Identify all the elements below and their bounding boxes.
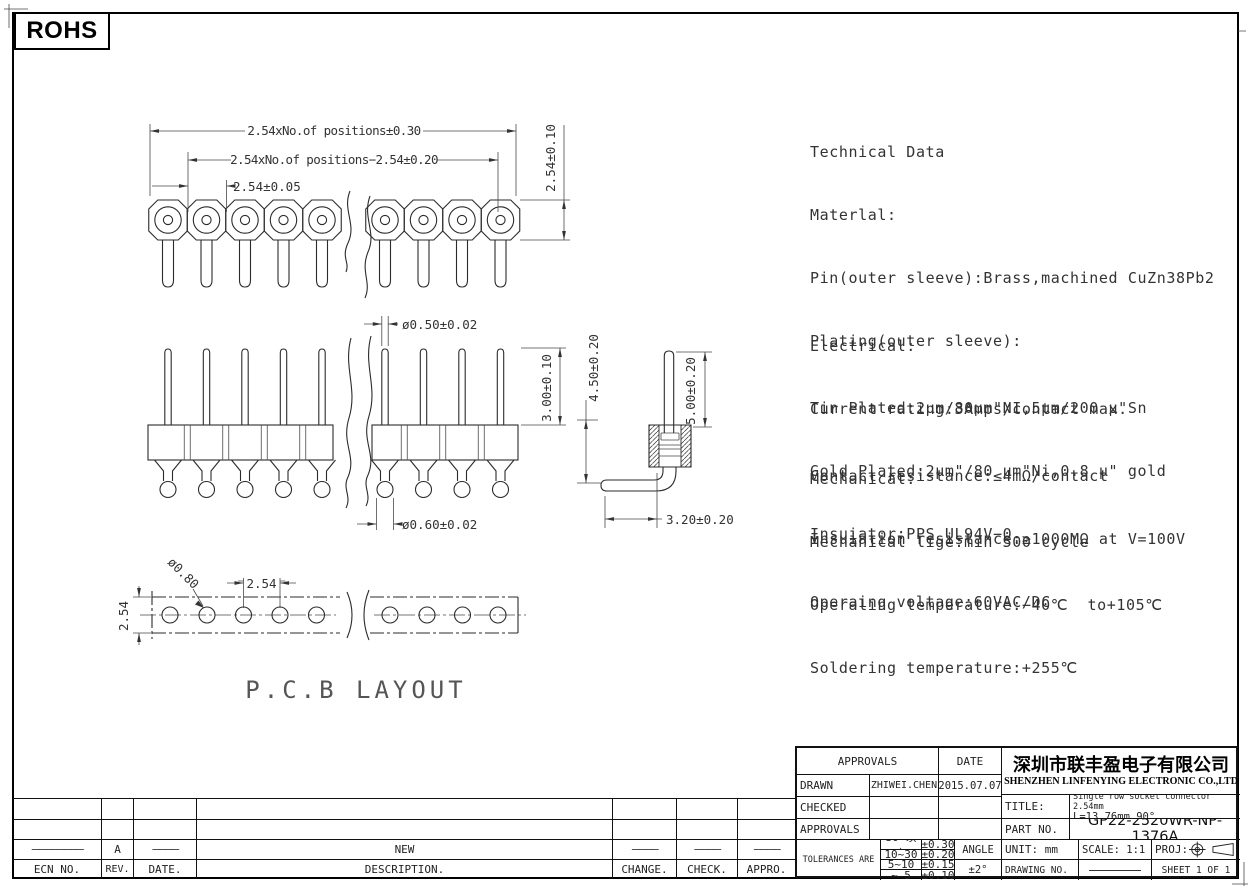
tol-range-4: ~ 5 <box>881 870 922 880</box>
entry-description: NEW <box>197 839 613 859</box>
note-line: Electrical: <box>810 336 1186 357</box>
header-ecn-no: ECN NO. <box>13 859 102 879</box>
dim-pin-length: 3.00±0.10 <box>539 354 554 422</box>
note-line: Current rating:3Amps/contact max. <box>810 399 1186 420</box>
front-view-geometry <box>148 336 518 508</box>
angle-tolerance: ±2° <box>955 860 1002 880</box>
dim-topview-inner: 2.54xNo.of positions−2.54±0.20 <box>230 152 438 167</box>
drawn-date: 2015.07.07 <box>939 775 1002 797</box>
scale-cell: SCALE: 1:1 <box>1079 840 1152 860</box>
title-block: APPROVALS DATE DRAWN ZHIWEI.CHEN 2015.07… <box>795 746 1238 878</box>
header-check: CHECK. <box>677 859 738 879</box>
entry-rev: A <box>102 839 134 859</box>
dim-pcb-row: 2.54 <box>116 601 131 631</box>
note-line: Mechanical lige:min 500 cycle <box>810 532 1163 553</box>
tol-range-2: 10~30 <box>881 850 922 860</box>
angle-label: ANGLE <box>955 840 1002 860</box>
third-angle-projection-icon <box>1189 841 1237 858</box>
entry-appro: ———— <box>738 839 795 859</box>
entry-change: ———— <box>613 839 677 859</box>
drawn-label: DRAWN <box>797 775 870 797</box>
approvals-date <box>939 819 1002 840</box>
title-value-line1: Single row socket connector 2.54mm <box>1073 795 1237 812</box>
note-line: Technical Data <box>810 142 1215 163</box>
checked-date <box>939 797 1002 819</box>
dim-pcb-hole-dia: ø0.80 <box>165 555 202 592</box>
checked-name <box>870 797 939 819</box>
dim-bend: 3.20±0.20 <box>666 512 734 527</box>
part-no-value: GP22-2520WR-NP-1376A <box>1070 819 1240 840</box>
drawing-no-value <box>1079 860 1152 880</box>
tolerances-label: TOLERANCES ARE <box>797 840 881 880</box>
entry-check: ———— <box>677 839 738 859</box>
note-line: Mechanical: <box>810 469 1163 490</box>
dim-pin-dia-top: ø0.50±0.02 <box>402 317 477 332</box>
tol-val-4: ±0.10 <box>922 870 955 880</box>
note-line: Soldering temperature:+255℃ <box>810 658 1163 679</box>
part-no-label: PART NO. <box>1002 819 1070 840</box>
header-date: DATE. <box>134 859 197 879</box>
mechanical-notes: Mechanical: Mechanical lige:min 500 cycl… <box>810 427 1163 721</box>
rohs-logo: ROHS <box>14 12 110 50</box>
checked-label: CHECKED <box>797 797 870 819</box>
entry-ecn: ———————— <box>13 839 102 859</box>
dim-pin-dia-bottom: ø0.60±0.02 <box>402 517 477 532</box>
dimension-lines <box>139 125 705 645</box>
dim-tail-length: 5.00±0.20 <box>683 357 698 425</box>
company-block: 深圳市联丰盈电子有限公司 SHENZHEN LINFENYING ELECTRO… <box>1002 748 1240 795</box>
tol-val-1: ±0.30 <box>922 840 955 850</box>
rohs-label: ROHS <box>26 17 97 45</box>
header-description: DESCRIPTION. <box>197 859 613 879</box>
tol-range-1: 30~以上 <box>881 840 922 850</box>
date-header: DATE <box>939 748 1002 775</box>
header-change: CHANGE. <box>613 859 677 879</box>
dim-topview-pitch: 2.54±0.05 <box>233 179 301 194</box>
header-rev: REV. <box>102 859 134 879</box>
tol-val-2: ±0.20 <box>922 850 955 860</box>
title-label: TITLE: <box>1002 795 1070 819</box>
pcb-layout-caption: P.C.B LAYOUT <box>245 676 466 704</box>
tol-val-3: ±0.15 <box>922 860 955 870</box>
drawing-no-label: DRAWING NO. <box>1002 860 1079 880</box>
blank-line <box>1089 870 1141 871</box>
title-value-line2: L=13.76mm 90° <box>1073 812 1155 820</box>
revision-table: ———————— A ———— NEW ———— ———— ———— ECN N… <box>13 798 795 878</box>
dim-overall-height: 4.50±0.20 <box>586 334 601 402</box>
header-appro: APPRO. <box>738 859 795 879</box>
drawn-name: ZHIWEI.CHEN <box>870 775 939 797</box>
unit-cell: UNIT: mm <box>1002 840 1079 860</box>
company-name-en: SHENZHEN LINFENYING ELECTRONIC CO.,LTD <box>1004 776 1238 787</box>
tol-range-3: 5~10 <box>881 860 922 870</box>
note-line: Operaling temperature:−40℃ to+105℃ <box>810 595 1163 616</box>
side-view-geometry <box>601 351 691 491</box>
top-view-geometry <box>149 191 520 298</box>
entry-date: ———— <box>134 839 197 859</box>
dim-pcb-pitch: 2.54 <box>246 576 276 591</box>
approvals-label: APPROVALS <box>797 819 870 840</box>
approvals-header: APPROVALS <box>797 748 939 775</box>
note-line: Pin(outer sleeve):Brass,machined CuZn38P… <box>810 268 1215 289</box>
approvals-name <box>870 819 939 840</box>
dim-topview-height: 2.54±0.10 <box>543 124 558 192</box>
note-line: Materlal: <box>810 205 1215 226</box>
dim-topview-total: 2.54xNo.of positions±0.30 <box>247 123 420 138</box>
projection-cell: PROJ: <box>1152 840 1240 860</box>
proj-label: PROJ: <box>1155 843 1188 856</box>
drawing-sheet: 2.54xNo.of positions±0.30 2.54xNo.of pos… <box>0 0 1249 890</box>
sheet-cell: SHEET 1 OF 1 <box>1152 860 1240 880</box>
title-value: Single row socket connector 2.54mm L=13.… <box>1070 795 1240 819</box>
company-name-cn: 深圳市联丰盈电子有限公司 <box>1013 756 1229 776</box>
